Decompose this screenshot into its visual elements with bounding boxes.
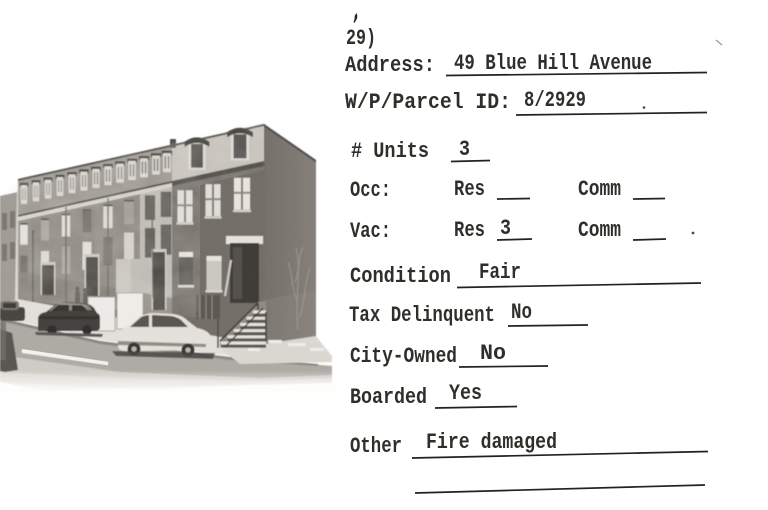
svg-text:No: No <box>511 300 532 325</box>
svg-text:Fire damaged: Fire damaged <box>426 430 557 455</box>
svg-text:W/P/Parcel ID:: W/P/Parcel ID: <box>345 90 511 115</box>
svg-text:29): 29) <box>346 26 376 51</box>
svg-text:Comm: Comm <box>578 177 621 202</box>
svg-text:# Units: # Units <box>351 139 429 164</box>
svg-text:Res: Res <box>454 177 485 202</box>
svg-text:Res: Res <box>454 218 485 243</box>
svg-text:Other: Other <box>350 434 402 459</box>
svg-text:Condition: Condition <box>350 264 451 289</box>
svg-text:49 Blue Hill Avenue: 49 Blue Hill Avenue <box>454 51 652 76</box>
svg-text:8/2929: 8/2929 <box>524 88 586 113</box>
svg-text:Tax Delinquent: Tax Delinquent <box>349 303 495 328</box>
svg-text:Yes: Yes <box>449 381 482 406</box>
svg-text:3: 3 <box>459 137 470 162</box>
svg-text:Boarded: Boarded <box>350 385 427 410</box>
svg-text:Occ:: Occ: <box>350 178 391 203</box>
svg-text:City-Owned: City-Owned <box>350 344 457 369</box>
svg-text:Comm: Comm <box>578 218 621 243</box>
svg-text:Vac:: Vac: <box>350 219 391 244</box>
svg-text:Address:: Address: <box>345 53 435 78</box>
svg-text:Fair: Fair <box>479 260 521 285</box>
svg-text:3: 3 <box>500 216 511 241</box>
svg-text:No: No <box>480 341 506 366</box>
